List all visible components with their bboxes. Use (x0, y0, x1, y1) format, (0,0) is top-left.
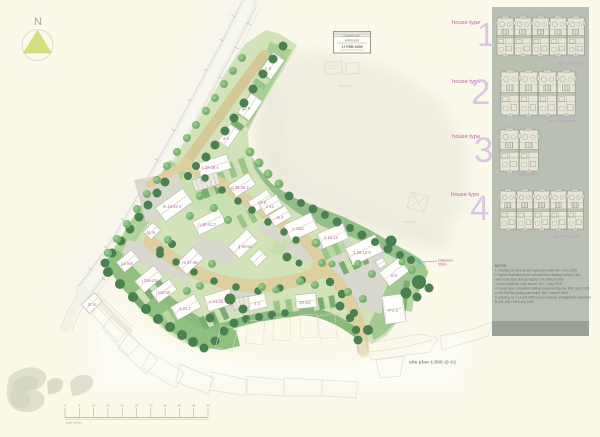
svg-text:type 3 plans: type 3 plans (519, 173, 539, 177)
svg-text:40: 40 (178, 404, 182, 408)
svg-text:t4 m: t4 m (147, 230, 156, 235)
svg-text:to 1/8. 456? February 2006: to 1/8. 456? February 2006 (495, 300, 534, 304)
svg-text:4: 4 (470, 189, 489, 228)
svg-text:20: 20 (121, 404, 125, 408)
svg-text:17 FEB 2006: 17 FEB 2006 (341, 45, 362, 49)
svg-text:15: 15 (106, 404, 110, 408)
svg-text:3. new road/plots code shown.: 3. new road/plots code shown. RH. 1 July… (495, 282, 562, 286)
svg-text:1. dwelling to window and layo: 1. dwelling to window and layout amended… (495, 269, 577, 273)
svg-text:4. house type 3 elevation sett: 4. house type 3 elevation setting measur… (495, 287, 589, 291)
svg-text:m 43-43 4: m 43-43 4 (163, 204, 182, 209)
svg-text:v m3d: v m3d (292, 226, 304, 231)
svg-text:e 41-43 4: e 41-43 4 (209, 299, 227, 304)
svg-text:t4 m: t4 m (88, 302, 97, 307)
svg-text:a 21 2: a 21 2 (179, 306, 191, 311)
svg-text:e 4: e 4 (265, 66, 271, 71)
svg-text:type 1 floor plans: type 1 floor plans (558, 62, 586, 66)
svg-text:10 m2: 10 m2 (299, 300, 311, 305)
svg-text:x 12: x 12 (266, 204, 274, 209)
svg-text:2: 2 (471, 73, 490, 112)
svg-text:j f2a-s2a: j f2a-s2a (141, 278, 158, 283)
svg-text:1: 1 (477, 16, 495, 53)
svg-text:NOTES: NOTES (495, 264, 506, 268)
svg-text:type 4 floor plans: type 4 floor plans (553, 235, 581, 239)
svg-text:q 50-52: q 50-52 (238, 244, 253, 249)
svg-text:n 40-41 2: n 40-41 2 (198, 222, 216, 227)
svg-text:2. layout amended as per counc: 2. layout amended as per council letter … (495, 273, 580, 277)
svg-text:25: 25 (135, 404, 139, 408)
svg-text:3: 3 (474, 131, 493, 170)
svg-text:PLANNING DEPT: PLANNING DEPT (344, 34, 361, 37)
svg-text:10: 10 (92, 404, 96, 408)
svg-text:500m: 500m (438, 263, 447, 267)
svg-text:g2 9: g2 9 (242, 106, 251, 111)
svg-text:1 14-12: 1 14-12 (324, 235, 339, 240)
svg-text:N: N (34, 16, 42, 28)
svg-text:j s12-s0: j s12-s0 (155, 290, 171, 295)
svg-text:site plan 1:500 @ A1: site plan 1:500 @ A1 (409, 360, 457, 366)
svg-text:30: 30 (149, 404, 153, 408)
svg-text:9+2: 9+2 (391, 273, 399, 278)
svg-text:and house type plots re-figure: and house type plots re-figures 7/01 Mar… (495, 278, 564, 282)
svg-text:1 24-18 8: 1 24-18 8 (353, 250, 371, 255)
svg-text:6. drawing no 1-14 plot 456 hs: 6. drawing no 1-14 plot 456 hse and park… (495, 296, 591, 300)
svg-text:m 4: m 4 (277, 215, 285, 220)
svg-text:35: 35 (163, 404, 167, 408)
svg-text:5. ref 456 hse parking amended: 5. ref 456 hse parking amended. BW. Octo… (495, 291, 568, 295)
svg-text:45: 45 (192, 404, 196, 408)
svg-text:APPROVED: APPROVED (345, 39, 360, 43)
svg-text:s 3: s 3 (254, 301, 260, 306)
svg-text:p4 m8: p4 m8 (121, 261, 133, 266)
svg-text:type 2 floor plans: type 2 floor plans (549, 119, 577, 123)
svg-text:a 6: a 6 (223, 136, 229, 141)
svg-text:a 30-38 4: a 30-38 4 (201, 165, 219, 170)
svg-text:scale metres: scale metres (66, 421, 82, 425)
svg-text:P 1-4: P 1-4 (388, 308, 398, 313)
svg-text:g 35-36 2: g 35-36 2 (231, 185, 249, 190)
svg-text:m 47-48: m 47-48 (182, 260, 198, 265)
svg-text:50: 50 (206, 404, 210, 408)
